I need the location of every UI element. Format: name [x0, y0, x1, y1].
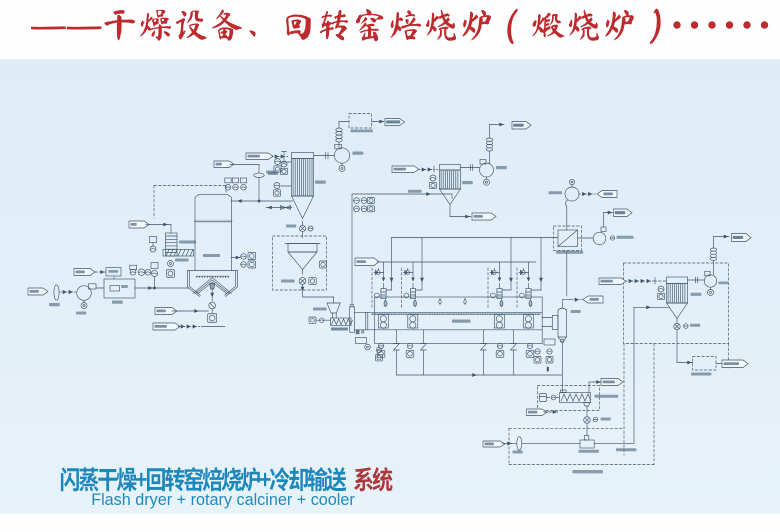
svg-text:Flash dryer + rotary calciner: Flash dryer + rotary calciner + cooler: [91, 491, 355, 509]
